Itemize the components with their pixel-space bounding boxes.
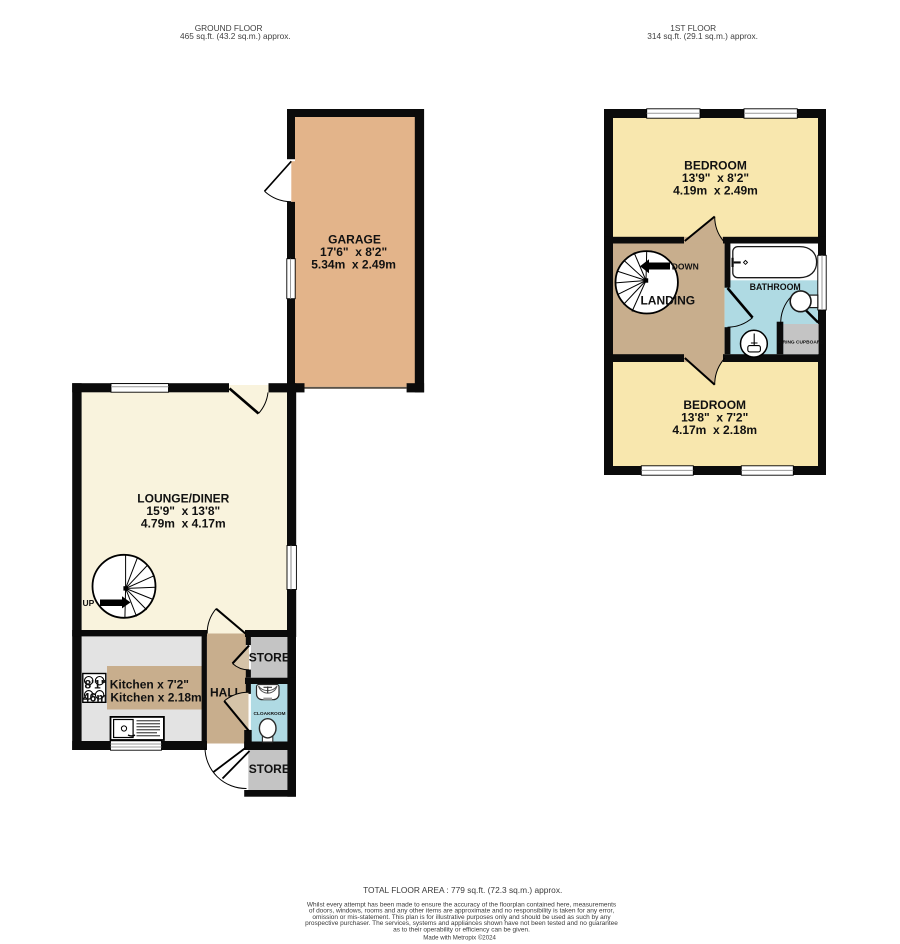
svg-text:BATHROOM: BATHROOM [750,282,801,292]
svg-text:4.17m x 2.18m: 4.17m x 2.18m [672,423,757,437]
svg-text:46m Kitchen x 2.18m: 46m Kitchen x 2.18m [83,691,202,705]
svg-text:4.79m x 4.17m: 4.79m x 4.17m [141,517,226,531]
svg-text:CLOAKROOM: CLOAKROOM [254,711,286,717]
svg-text:TOTAL FLOOR AREA : 779 sq.ft.: TOTAL FLOOR AREA : 779 sq.ft. (72.3 sq.m… [363,885,562,895]
svg-text:465 sq.ft. (43.2 sq.m.) approx: 465 sq.ft. (43.2 sq.m.) approx. [180,31,291,41]
svg-text:UP: UP [83,598,95,608]
svg-text:Made with Metropix ©2024: Made with Metropix ©2024 [423,934,496,941]
svg-text:4.19m x 2.49m: 4.19m x 2.49m [673,184,758,198]
svg-text:DOWN: DOWN [672,262,699,272]
svg-text:314 sq.ft. (29.1 sq.m.) approx: 314 sq.ft. (29.1 sq.m.) approx. [647,31,758,41]
svg-text:5.34m x 2.49m: 5.34m x 2.49m [311,257,396,271]
svg-text:AIRING CUPBOARD: AIRING CUPBOARD [778,340,824,346]
svg-text:STORE: STORE [249,762,290,776]
svg-text:LANDING: LANDING [640,294,695,308]
svg-text:STORE: STORE [249,650,290,664]
svg-text:as to their operability or eff: as to their operability or efficiency ca… [393,927,530,934]
